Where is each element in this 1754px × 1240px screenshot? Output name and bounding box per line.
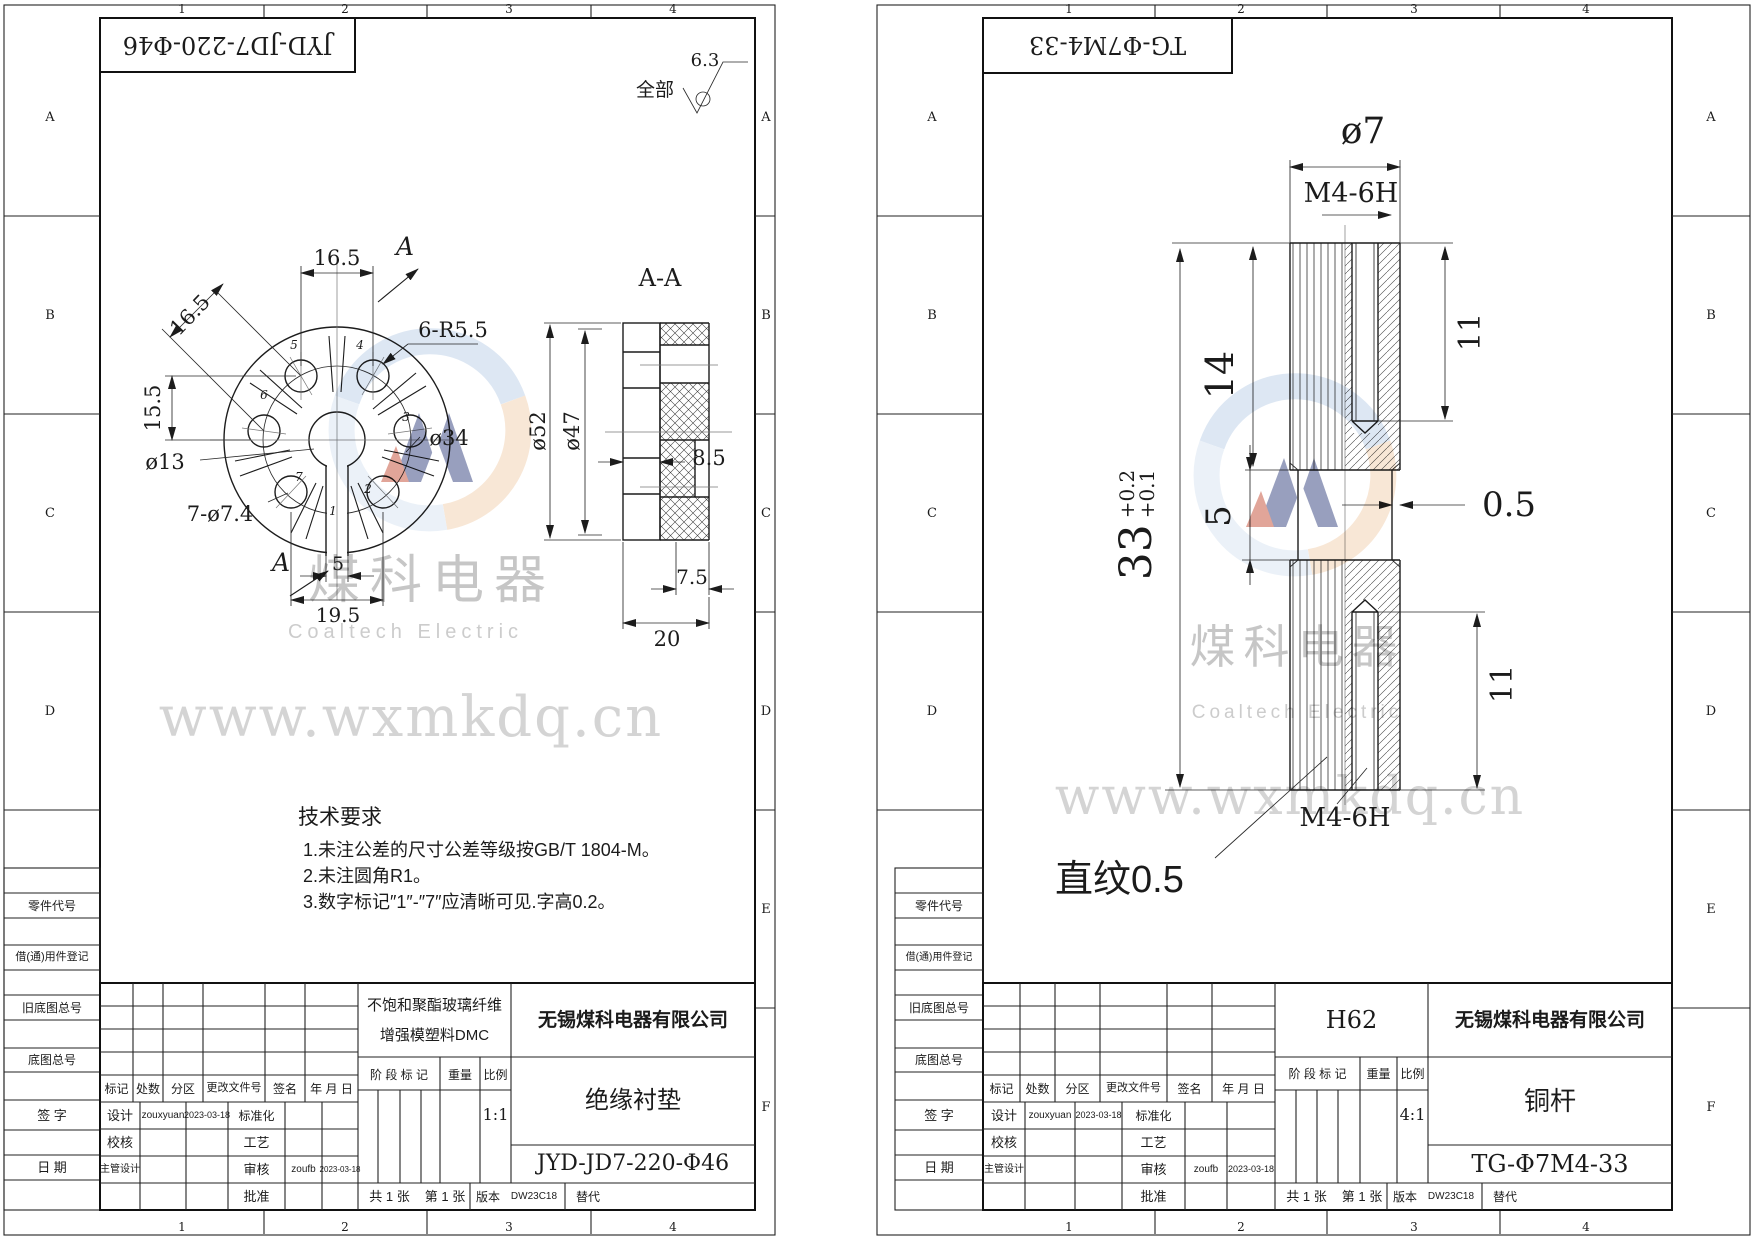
tb-count: 处数 — [133, 1075, 163, 1102]
dim-7-holes: 7-ø7.4 — [160, 502, 280, 526]
tb-material-1: 不饱和聚酯玻璃纤维 — [358, 992, 511, 1018]
zone-row-A-r: A — [756, 108, 776, 126]
tb-zone: 分区 — [163, 1075, 203, 1102]
zone-row-B-r: B — [1701, 306, 1721, 324]
tb-change-no: 更改文件号 — [203, 1075, 265, 1102]
tb-design-date: 2023-03-18 — [1075, 1102, 1122, 1129]
tb-version: DW23C18 — [1421, 1183, 1481, 1210]
zone-row-B: B — [40, 306, 60, 324]
tech-req-line-2: 2.未注圆角R1。 — [303, 864, 523, 888]
zone-row-D-r: D — [756, 702, 776, 720]
tb-material-2: 增强模塑料DMC — [358, 1022, 511, 1048]
margin-part-code: 零件代号 — [895, 893, 983, 918]
margin-borrow: 借(通)用件登记 — [4, 945, 100, 970]
dim-5: 5 — [1201, 486, 1237, 546]
zone-row-E-r: E — [756, 900, 776, 918]
zone-row-D-r: D — [1701, 702, 1721, 720]
dim-33-tol-lower: +0.1 — [1137, 470, 1157, 519]
zone-row-A: A — [40, 108, 60, 126]
tb-change-no: 更改文件号 — [1100, 1075, 1167, 1102]
hole-num-6: 6 — [258, 388, 270, 402]
tech-req-title: 技术要求 — [298, 804, 418, 830]
zone-row-C: C — [922, 504, 942, 522]
tb-audit-date: 2023-03-18 — [322, 1156, 358, 1183]
margin-base: 底图总号 — [4, 1048, 100, 1072]
tb-ymd: 年 月 日 — [1212, 1075, 1275, 1102]
zone-col-1: 1 — [1059, 2, 1079, 16]
finish-scope-label: 全部 — [632, 78, 678, 102]
dim-7-5: 7.5 — [670, 566, 714, 588]
tb-design: 设计 — [100, 1102, 140, 1129]
tb-stage: 阶 段 标 记 — [358, 1060, 440, 1090]
tb-scale-label: 比例 — [480, 1060, 511, 1090]
margin-old-base: 旧底图总号 — [4, 995, 100, 1020]
tech-req-line-1: 1.未注公差的尺寸公差等级按GB/T 1804-M。 — [303, 838, 673, 862]
tb-designer: zouxyuan — [1025, 1102, 1075, 1129]
margin-date: 日 期 — [895, 1155, 983, 1180]
zone-row-A: A — [922, 108, 942, 126]
margin-date: 日 期 — [4, 1155, 100, 1180]
tb-sheets-total: 共 1 张 — [362, 1183, 417, 1210]
zone-row-C: C — [40, 504, 60, 522]
zone-row-B-r: B — [756, 306, 776, 324]
tb-design-date: 2023-03-18 — [186, 1102, 228, 1129]
zone-row-D: D — [922, 702, 942, 720]
tb-scale-label: 比例 — [1397, 1057, 1428, 1090]
dim-14: 14 — [1200, 325, 1240, 425]
tb-version: DW23C18 — [504, 1183, 564, 1210]
tb-audit-date: 2023-03-18 — [1227, 1156, 1275, 1183]
zone-row-F-r: F — [756, 1098, 776, 1116]
zone-row-A-r: A — [1701, 108, 1721, 126]
tb-process: 工艺 — [228, 1129, 285, 1156]
zone-col-4b: 4 — [663, 1219, 683, 1235]
tb-drawing-no: TG-Φ7M4-33 — [1428, 1145, 1672, 1183]
tb-design: 设计 — [983, 1102, 1025, 1129]
tb-drawing-no: JYD-JD7-220-Φ46 — [511, 1145, 755, 1183]
dim-20: 20 — [648, 627, 686, 651]
zone-col-3b: 3 — [1404, 1219, 1424, 1235]
sheet-right: 煤科电器 Coaltech Electric www.wxmkdq.cn 1 2… — [875, 0, 1754, 1240]
dim-33-tol: 33 +0.2 +0.1 — [1102, 405, 1172, 645]
zone-row-C-r: C — [1701, 504, 1721, 522]
tb-weight: 重量 — [440, 1060, 480, 1090]
margin-sign: 签 字 — [895, 1100, 983, 1130]
tb-auditor: zoufb — [285, 1156, 322, 1183]
zone-row-E-r: E — [1701, 900, 1721, 918]
tb-replace: 替代 — [568, 1183, 608, 1210]
tb-stage: 阶 段 标 记 — [1275, 1057, 1360, 1090]
rod-geometry — [1290, 225, 1400, 805]
zone-row-F-r: F — [1701, 1098, 1721, 1116]
tb-audit: 审核 — [1122, 1156, 1185, 1183]
dim-d13: ø13 — [130, 450, 200, 474]
dim-11-top: 11 — [1454, 292, 1488, 372]
tb-part-name: 绝缘衬垫 — [511, 1057, 755, 1145]
doc-number-box: TG-Φ7M4-33 — [983, 18, 1232, 73]
tb-chief: 主管设计 — [100, 1156, 140, 1183]
zone-col-1: 1 — [172, 2, 192, 16]
hole-num-4: 4 — [354, 338, 366, 352]
tb-approve: 批准 — [1122, 1183, 1185, 1210]
section-arrow-a-top: A — [392, 232, 418, 260]
dim-m4-bottom: M4-6H — [1295, 802, 1395, 834]
margin-part-code: 零件代号 — [4, 893, 100, 918]
dim-m4-top: M4-6H — [1303, 176, 1399, 210]
zone-col-4: 4 — [1576, 2, 1596, 16]
dim-d47: ø47 — [560, 397, 584, 465]
zone-col-4b: 4 — [1576, 1219, 1596, 1235]
dim-16-5-top: 16.5 — [303, 246, 371, 270]
knurl-note: 直纹0.5 — [1055, 856, 1285, 904]
tb-check: 校核 — [983, 1129, 1025, 1156]
zone-col-2b: 2 — [335, 1219, 355, 1235]
tb-sign: 签名 — [1167, 1075, 1212, 1102]
tb-chief: 主管设计 — [983, 1156, 1025, 1183]
zone-col-4: 4 — [663, 2, 683, 16]
zone-col-3: 3 — [1404, 2, 1424, 16]
dim-33-value: 33 — [1115, 524, 1159, 580]
tb-company: 无锡煤科电器有限公司 — [1428, 983, 1672, 1057]
margin-borrow: 借(通)用件登记 — [895, 945, 983, 970]
tb-process: 工艺 — [1122, 1129, 1185, 1156]
tb-mark: 标记 — [983, 1075, 1020, 1102]
zone-col-3b: 3 — [499, 1219, 519, 1235]
tb-ymd: 年 月 日 — [305, 1075, 358, 1102]
tb-version-label: 版本 — [1389, 1183, 1421, 1210]
zone-col-2: 2 — [335, 2, 355, 16]
section-view-geometry — [605, 323, 732, 540]
dim-15-5: 15.5 — [141, 374, 165, 442]
dim-d7: ø7 — [1327, 112, 1399, 152]
tb-approve: 批准 — [228, 1183, 285, 1210]
hole-num-1: 1 — [327, 504, 339, 518]
sheet-left: 煤科电器 Coaltech Electric www.wxmkdq.cn 1 2… — [0, 0, 779, 1240]
tb-company: 无锡煤科电器有限公司 — [511, 983, 755, 1057]
margin-base: 底图总号 — [895, 1048, 983, 1072]
tb-check: 校核 — [100, 1129, 140, 1156]
section-arrow-a-bottom: A — [268, 548, 294, 576]
tb-count: 处数 — [1020, 1075, 1055, 1102]
dim-6-r5-5: 6-R5.5 — [406, 318, 500, 342]
doc-number-box: JYD-JD7-220-Φ46 — [100, 18, 355, 72]
hole-num-7: 7 — [293, 470, 305, 484]
zone-row-B: B — [922, 306, 942, 324]
zone-row-D: D — [40, 702, 60, 720]
hole-num-3: 3 — [400, 410, 412, 424]
tb-sheets-total: 共 1 张 — [1279, 1183, 1334, 1210]
dim-8-5: 8.5 — [686, 446, 732, 470]
tb-auditor: zoufb — [1185, 1156, 1227, 1183]
dim-33-tol-upper: +0.2 — [1117, 470, 1137, 519]
zone-col-3: 3 — [499, 2, 519, 16]
zone-col-2b: 2 — [1231, 1219, 1251, 1235]
tb-version-label: 版本 — [472, 1183, 504, 1210]
tb-standardize: 标准化 — [1122, 1102, 1185, 1129]
dim-d34: ø34 — [416, 426, 482, 450]
tb-material: H62 — [1275, 983, 1428, 1057]
zone-row-C-r: C — [756, 504, 776, 522]
tb-part-name: 铜杆 — [1428, 1057, 1672, 1145]
margin-sign: 签 字 — [4, 1100, 100, 1130]
tb-designer: zouxyuan — [140, 1102, 186, 1129]
tb-sheet-no: 第 1 张 — [1337, 1183, 1387, 1210]
hole-num-5: 5 — [288, 338, 300, 352]
tb-zone: 分区 — [1055, 1075, 1100, 1102]
tb-scale-value: 1:1 — [480, 1095, 511, 1135]
tb-mark: 标记 — [100, 1075, 133, 1102]
dim-19-5: 19.5 — [310, 604, 366, 626]
dim-0-5: 0.5 — [1467, 486, 1551, 524]
tb-scale-value: 4:1 — [1397, 1090, 1428, 1140]
margin-old-base: 旧底图总号 — [895, 995, 983, 1020]
dim-slot-5: 5 — [330, 554, 346, 574]
zone-col-2: 2 — [1231, 2, 1251, 16]
section-title: A-A — [622, 264, 698, 292]
zone-col-1b: 1 — [172, 1219, 192, 1235]
tb-audit: 审核 — [228, 1156, 285, 1183]
tech-req-line-3: 3.数字标记″1″-″7″应清晰可见.字高0.2。 — [303, 890, 633, 914]
zone-col-1b: 1 — [1059, 1219, 1079, 1235]
engineering-drawing-page: 煤科电器 Coaltech Electric www.wxmkdq.cn 1 2… — [0, 0, 1754, 1240]
tb-standardize: 标准化 — [228, 1102, 285, 1129]
tb-sheet-no: 第 1 张 — [420, 1183, 470, 1210]
finish-value: 6.3 — [688, 50, 722, 72]
hole-num-2: 2 — [362, 482, 374, 496]
tb-sign: 签名 — [265, 1075, 305, 1102]
dim-11-bottom: 11 — [1486, 644, 1520, 724]
tb-replace: 替代 — [1485, 1183, 1525, 1210]
dim-d52: ø52 — [526, 397, 550, 465]
tb-weight: 重量 — [1360, 1057, 1397, 1090]
